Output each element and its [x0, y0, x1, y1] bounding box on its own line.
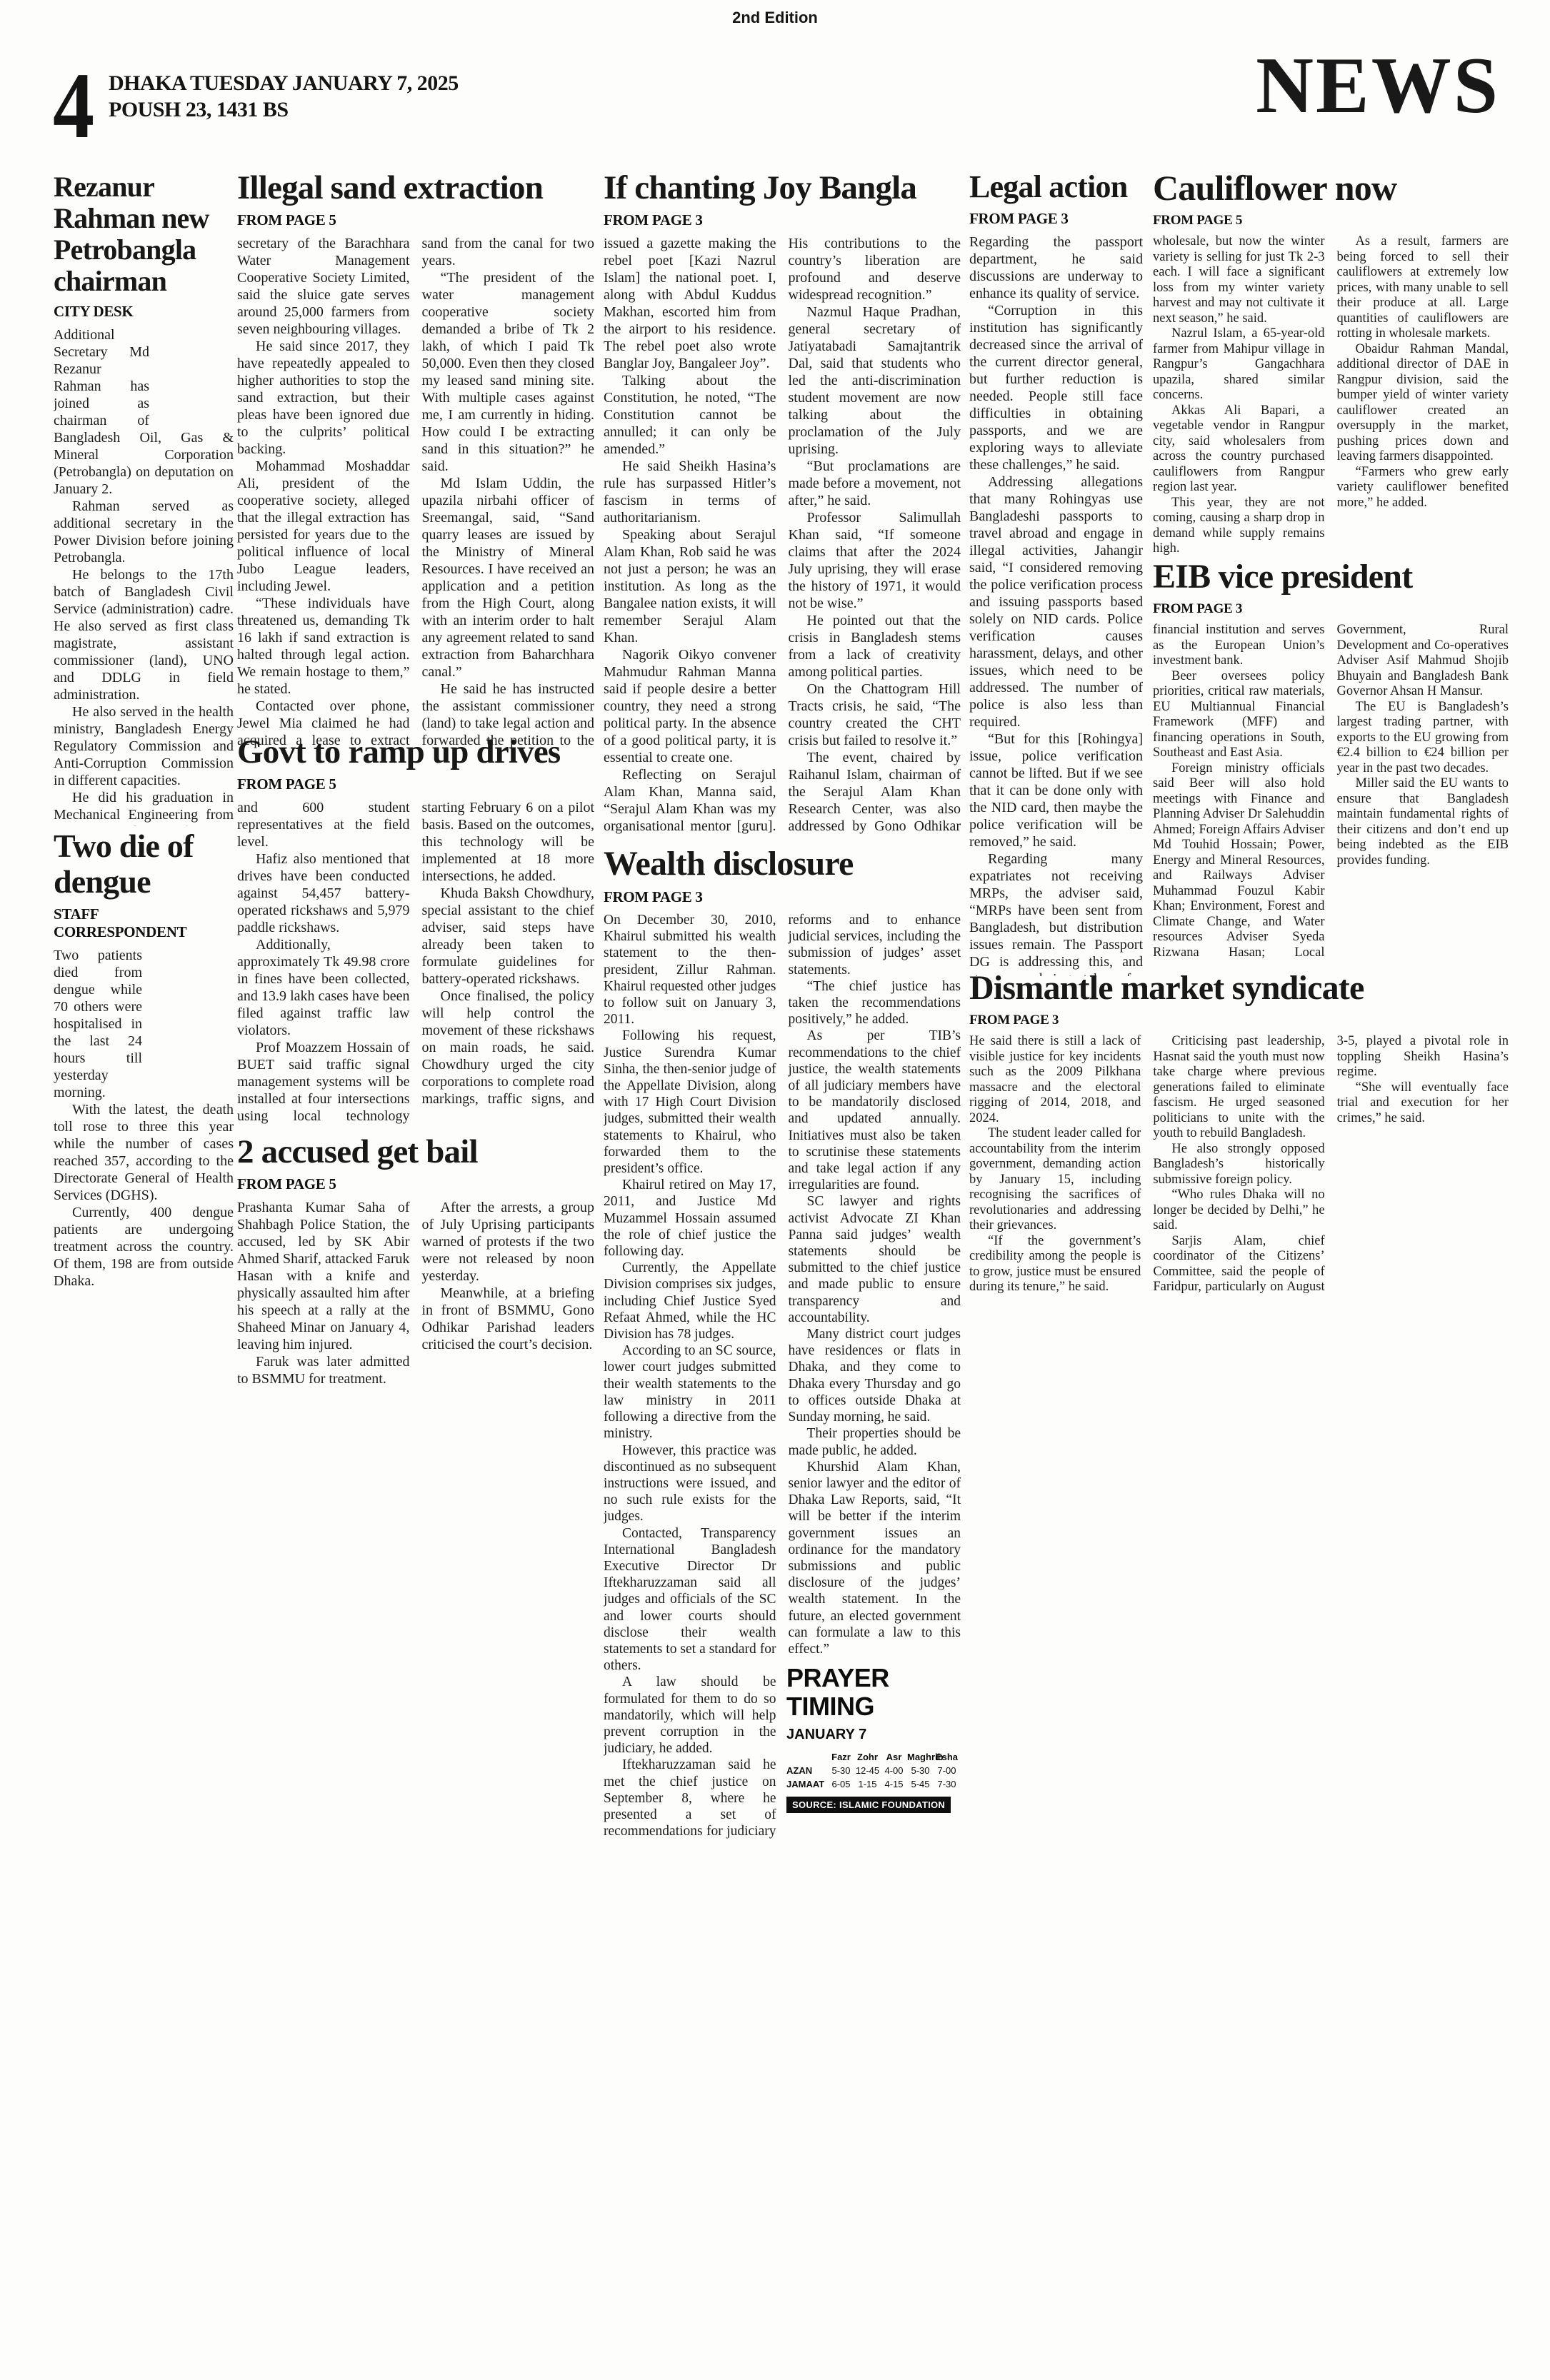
article-2-accused-get-bail: 2 accused get bail FROM PAGE 5 Prashanta…	[237, 1134, 594, 1420]
paragraph: Their properties should be made public, …	[789, 1425, 961, 1458]
paragraph: Meanwhile, at a briefing in front of BSM…	[422, 1285, 595, 1353]
article-continuation-label: FROM PAGE 3	[969, 210, 1143, 228]
paragraph: Nazmul Haque Pradhan, general secretary …	[789, 303, 961, 458]
paragraph: issued a gazette making the rebel poet […	[604, 235, 776, 372]
paragraph: According to an SC source, lower court j…	[604, 1342, 776, 1442]
paragraph: Khurshid Alam Khan, senior lawyer and th…	[789, 1459, 961, 1657]
prayer-timing-table: Fazr Zohr Asr Maghrib Esha AZAN 5-30 12-…	[786, 1750, 961, 1791]
paragraph: Professor Salimullah Khan said, “If some…	[789, 509, 961, 612]
paragraph: Beer oversees policy priorities, critica…	[1153, 669, 1325, 761]
paragraph: “If the government’s credibility among t…	[969, 1234, 1141, 1295]
dateline-calendar: POUSH 23, 1431 BS	[109, 96, 459, 123]
paragraph: Currently, the Appellate Division compri…	[604, 1260, 776, 1342]
paragraph: He belongs to the 17th batch of Banglade…	[54, 566, 234, 703]
paragraph: “But proclamations are made before a mov…	[789, 458, 961, 509]
paragraph: The student leader called for accountabi…	[969, 1126, 1141, 1234]
jamaat-esha-time: 7-30	[934, 1779, 960, 1789]
paragraph: After the arrests, a group of July Upris…	[422, 1199, 595, 1285]
paragraph: He pointed out that the crisis in Bangla…	[789, 612, 961, 681]
newspaper-page: 2nd Edition 4 DHAKA TUESDAY JANUARY 7, 2…	[0, 0, 1550, 2380]
jamaat-asr-time: 4-15	[881, 1779, 907, 1789]
article-body: Two patients died from dengue while 70 o…	[54, 947, 234, 1347]
jamaat-maghrib-time: 5-45	[907, 1779, 934, 1789]
edition-label: 2nd Edition	[0, 9, 1550, 27]
paragraph: The EU is Bangladesh’s largest trading p…	[1337, 700, 1509, 777]
article-dismantle-market-syndicate: Dismantle market syndicate FROM PAGE 3 H…	[969, 970, 1509, 1298]
paragraph: He said since 2017, they have repeatedly…	[237, 338, 410, 458]
paragraph: Nazrul Islam, a 65-year-old farmer from …	[1153, 326, 1325, 403]
azan-maghrib-time: 5-30	[907, 1765, 934, 1776]
paragraph: A law should be formulated for them to d…	[604, 1674, 776, 1757]
paragraph: As a result, farmers are being forced to…	[1337, 234, 1509, 342]
article-continuation-label: FROM PAGE 3	[604, 211, 961, 229]
article-two-die-dengue: Two die of dengue STAFF CORRESPONDENT Tw…	[54, 828, 234, 1347]
article-headline: Govt to ramp up drives	[237, 734, 594, 770]
prayer-row-jamaat: JAMAAT 6-05 1-15 4-15 5-45 7-30	[786, 1777, 961, 1791]
paragraph: “The president of the water management c…	[422, 269, 595, 475]
paragraph: Faruk was later admitted to BSMMU for tr…	[237, 1353, 410, 1387]
article-continuation-label: FROM PAGE 5	[237, 775, 594, 793]
paragraph: Md Islam Uddin, the upazila nirbahi offi…	[422, 475, 595, 681]
paragraph: Contacted, Transparency International Ba…	[604, 1525, 776, 1674]
article-headline: Wealth disclosure	[604, 845, 961, 883]
article-illegal-sand-extraction: Illegal sand extraction FROM PAGE 5 secr…	[237, 170, 594, 779]
prayer-timing-box: PRAYER TIMING JANUARY 7 Fazr Zohr Asr Ma…	[786, 1664, 961, 1813]
paragraph: Prashanta Kumar Saha of Shahbagh Police …	[237, 1199, 410, 1353]
article-eib-vice-president: EIB vice president FROM PAGE 3 financial…	[1153, 558, 1509, 973]
article-continuation-label: FROM PAGE 3	[1153, 601, 1509, 617]
article-headline: 2 accused get bail	[237, 1134, 594, 1170]
azan-zohr-time: 12-45	[854, 1765, 881, 1776]
azan-asr-time: 4-00	[881, 1765, 907, 1776]
article-continuation-label: FROM PAGE 5	[237, 211, 594, 229]
prayer-timing-date: JANUARY 7	[786, 1727, 961, 1743]
paragraph: He said there is still a lack of visible…	[969, 1034, 1141, 1126]
article-body: wholesale, but now the winter variety is…	[1153, 234, 1509, 559]
article-body: He said there is still a lack of visible…	[969, 1034, 1509, 1298]
prayer-table-header: Fazr Zohr Asr Maghrib Esha	[786, 1750, 961, 1764]
article-legal-action: Legal action FROM PAGE 3 Regarding the p…	[969, 170, 1143, 976]
paragraph: On the Chattogram Hill Tracts crisis, he…	[789, 681, 961, 749]
prayer-col-asr: Asr	[881, 1752, 907, 1762]
azan-esha-time: 7-00	[934, 1765, 960, 1776]
article-body: Additional Secretary Md Rezanur Rahman h…	[54, 326, 234, 826]
paragraph: Hafiz also mentioned that drives have be…	[237, 850, 410, 936]
paragraph: “Who rules Dhaka will no longer be decid…	[1153, 1188, 1324, 1234]
prayer-col-fazr: Fazr	[828, 1752, 854, 1762]
prayer-col-esha: Esha	[934, 1752, 960, 1762]
paragraph: secretary of the Barachhara Water Manage…	[237, 235, 410, 338]
article-continuation-label: FROM PAGE 3	[604, 888, 961, 906]
prayer-timing-title: PRAYER TIMING	[786, 1664, 901, 1721]
article-if-chanting-joy-bangla: If chanting Joy Bangla FROM PAGE 3 issue…	[604, 170, 961, 843]
article-headline: Legal action	[969, 170, 1143, 204]
article-body: Regarding the passport department, he sa…	[969, 234, 1143, 976]
paragraph: Nagorik Oikyo convener Mahmudur Rahman M…	[604, 646, 776, 766]
article-headline: Cauliflower now	[1153, 169, 1509, 207]
article-govt-ramp-up-drives: Govt to ramp up drives FROM PAGE 5 and 6…	[237, 734, 594, 1133]
dateline-date: DHAKA TUESDAY JANUARY 7, 2025	[109, 70, 459, 96]
paragraph: Addressing allegations that many Rohingy…	[969, 473, 1143, 730]
paragraph: Many district court judges have residenc…	[789, 1326, 961, 1425]
paragraph: Additionally, approximately Tk 49.98 cro…	[237, 936, 410, 1039]
article-byline: STAFF CORRESPONDENT	[54, 905, 234, 941]
article-byline: CITY DESK	[54, 303, 234, 321]
paragraph: wholesale, but now the winter variety is…	[1153, 234, 1325, 326]
article-headline: Illegal sand extraction	[237, 170, 594, 206]
article-body: secretary of the Barachhara Water Manage…	[237, 235, 594, 779]
paragraph: Regarding the passport department, he sa…	[969, 234, 1143, 302]
paragraph: Speaking about Serajul Alam Khan, Rob sa…	[604, 526, 776, 646]
article-body: Prashanta Kumar Saha of Shahbagh Police …	[237, 1199, 594, 1420]
azan-fazr-time: 5-30	[828, 1765, 854, 1776]
article-rezanur-rahman: Rezanur Rahman new Petrobangla chairman …	[54, 171, 234, 826]
article-headline: EIB vice president	[1153, 558, 1509, 596]
prayer-col-maghrib: Maghrib	[907, 1752, 934, 1762]
paragraph: Rahman served as additional secretary in…	[54, 498, 234, 566]
prayer-source-label: SOURCE: ISLAMIC FOUNDATION	[786, 1797, 951, 1813]
page-number: 4	[53, 59, 94, 153]
paragraph: Mohammad Moshaddar Ali, president of the…	[237, 458, 410, 595]
paragraph: Akkas Ali Bapari, a vegetable vendor in …	[1153, 403, 1325, 496]
article-headline: Two die of dengue	[54, 828, 234, 900]
paragraph: On December 30, 2010, Khairul submitted …	[604, 912, 776, 1028]
paragraph: Khairul retired on May 17, 2011, and Jus…	[604, 1177, 776, 1260]
masthead-dateline: DHAKA TUESDAY JANUARY 7, 2025 POUSH 23, …	[109, 70, 459, 123]
paragraph: Following his request, Justice Surendra …	[604, 1028, 776, 1177]
jamaat-fazr-time: 6-05	[828, 1779, 854, 1789]
prayer-row-azan: AZAN 5-30 12-45 4-00 5-30 7-00	[786, 1764, 961, 1777]
paragraph: Regarding many expatriates not receiving…	[969, 850, 1143, 976]
paragraph: financial institution and serves as the …	[1153, 623, 1325, 669]
paragraph: SC lawyer and rights activist Advocate Z…	[789, 1193, 961, 1326]
article-headline: Dismantle market syndicate	[969, 970, 1509, 1007]
paragraph: He also strongly opposed Bangladesh’s hi…	[1153, 1142, 1324, 1188]
paragraph: He also served in the health ministry, B…	[54, 703, 234, 789]
article-body: and 600 student representatives at the f…	[237, 799, 594, 1133]
paragraph: Miller said the EU wants to ensure that …	[1337, 776, 1509, 868]
paragraph: Khuda Baksh Chowdhury, special assistant…	[422, 885, 595, 988]
paragraph: “Farmers who grew early variety cauliflo…	[1337, 465, 1509, 511]
paragraph: Additional Secretary Md Rezanur Rahman h…	[54, 326, 234, 498]
article-headline: If chanting Joy Bangla	[604, 170, 961, 206]
paragraph: With the latest, the death toll rose to …	[54, 1101, 234, 1204]
prayer-row-label: AZAN	[786, 1765, 828, 1776]
article-cauliflower-now: Cauliflower now FROM PAGE 5 wholesale, b…	[1153, 169, 1509, 559]
article-continuation-label: FROM PAGE 5	[1153, 213, 1509, 229]
article-continuation-label: FROM PAGE 5	[237, 1175, 594, 1193]
paragraph: Currently, 400 dengue patients are under…	[54, 1204, 234, 1290]
prayer-row-label: JAMAAT	[786, 1779, 828, 1789]
paragraph: “The chief justice has taken the recomme…	[789, 978, 961, 1028]
paragraph: and 600 student representatives at the f…	[237, 799, 410, 850]
paragraph: He said Sheikh Hasina’s rule has surpass…	[604, 458, 776, 526]
paragraph: “She will eventually face trial and exec…	[1337, 1080, 1509, 1127]
paragraph: However, this practice was discontinued …	[604, 1442, 776, 1525]
article-headline: Rezanur Rahman new Petrobangla chairman	[54, 171, 234, 297]
paragraph: “But for this [Rohingya] issue, police v…	[969, 730, 1143, 850]
paragraph: Two patients died from dengue while 70 o…	[54, 947, 234, 1101]
article-body: financial institution and serves as the …	[1153, 623, 1509, 973]
paragraph: He did his graduation in Mechanical Engi…	[54, 789, 234, 826]
prayer-col-zohr: Zohr	[854, 1752, 881, 1762]
paragraph: Obaidur Rahman Mandal, additional direct…	[1337, 342, 1509, 465]
jamaat-zohr-time: 1-15	[854, 1779, 881, 1789]
article-continuation-label: FROM PAGE 3	[969, 1013, 1509, 1028]
paragraph: “These individuals have threatened us, d…	[237, 595, 410, 698]
section-title: NEWS	[929, 46, 1500, 126]
paragraph: Talking about the Constitution, he noted…	[604, 372, 776, 458]
paragraph: “Corruption in this institution has sign…	[969, 302, 1143, 473]
paragraph: As per TIB’s recommendations to the chie…	[789, 1028, 961, 1193]
paragraph: This year, they are not coming, causing …	[1153, 496, 1325, 557]
paragraph: Criticising past leadership, Hasnat said…	[1153, 1034, 1324, 1142]
article-body: issued a gazette making the rebel poet […	[604, 235, 961, 843]
